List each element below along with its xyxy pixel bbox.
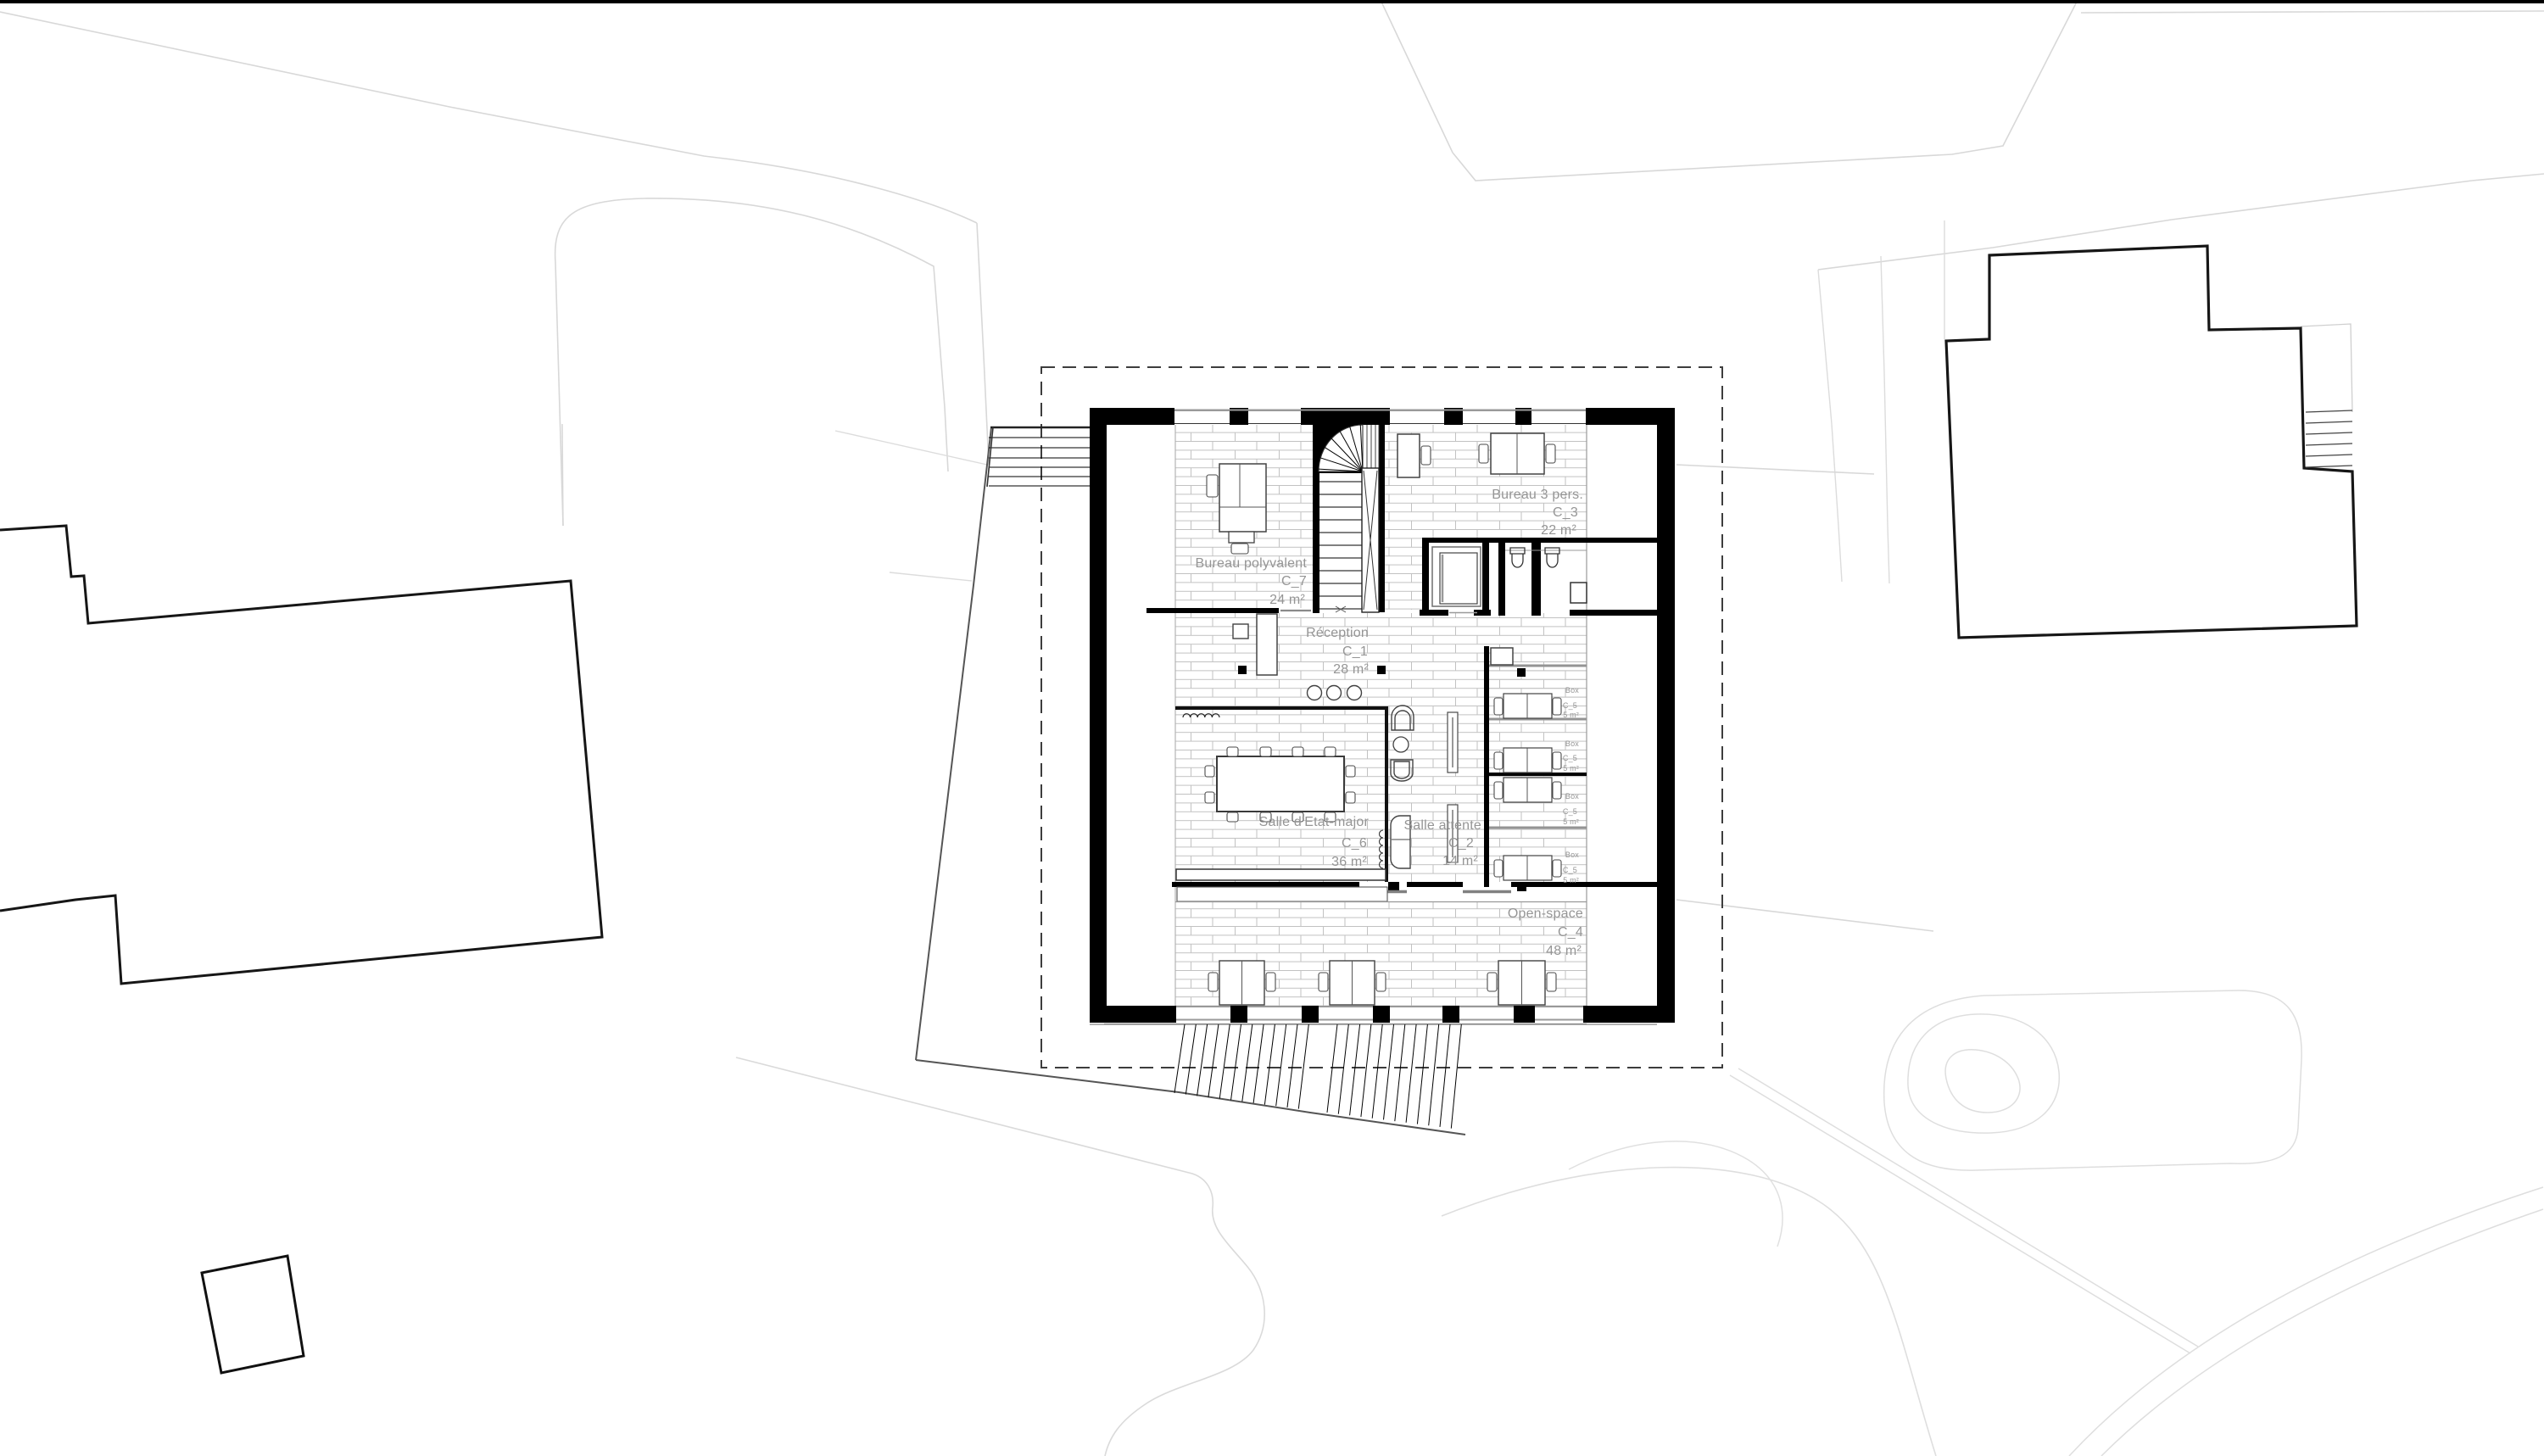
svg-text:5 m²: 5 m² [1563,711,1579,719]
svg-text:C_5: C_5 [1563,866,1577,874]
svg-text:C_4: C_4 [1558,925,1583,940]
svg-text:Bureau 3 pers.: Bureau 3 pers. [1492,488,1583,502]
svg-text:Open-space: Open-space [1508,907,1583,921]
svg-text:24 m²: 24 m² [1269,593,1305,607]
svg-text:C_3: C_3 [1553,505,1578,520]
svg-text:Box: Box [1565,851,1579,859]
svg-text:22 m²: 22 m² [1541,523,1576,538]
svg-text:C_1: C_1 [1342,644,1368,659]
svg-text:Box: Box [1565,792,1579,801]
svg-text:5 m²: 5 m² [1563,817,1579,826]
svg-text:5 m²: 5 m² [1563,876,1579,884]
svg-text:C_5: C_5 [1563,754,1577,762]
svg-text:Salle attente: Salle attente [1403,818,1481,833]
svg-text:C_7: C_7 [1281,574,1307,589]
svg-text:Box: Box [1565,686,1579,695]
svg-text:C_5: C_5 [1563,701,1577,710]
svg-text:Salle d'Etat-major: Salle d'Etat-major [1259,815,1370,829]
svg-text:28 m²: 28 m² [1333,662,1369,677]
svg-text:14 m²: 14 m² [1442,854,1478,868]
svg-text:Bureau polyvalent: Bureau polyvalent [1196,556,1308,571]
svg-text:36 m²: 36 m² [1331,855,1367,869]
svg-text:C_6: C_6 [1342,836,1367,851]
svg-text:Box: Box [1565,739,1579,748]
svg-text:C_5: C_5 [1563,807,1577,816]
svg-text:Réception: Réception [1306,626,1369,640]
svg-text:5 m²: 5 m² [1563,764,1579,773]
svg-text:C_2: C_2 [1448,836,1474,851]
svg-text:48 m²: 48 m² [1546,944,1582,958]
